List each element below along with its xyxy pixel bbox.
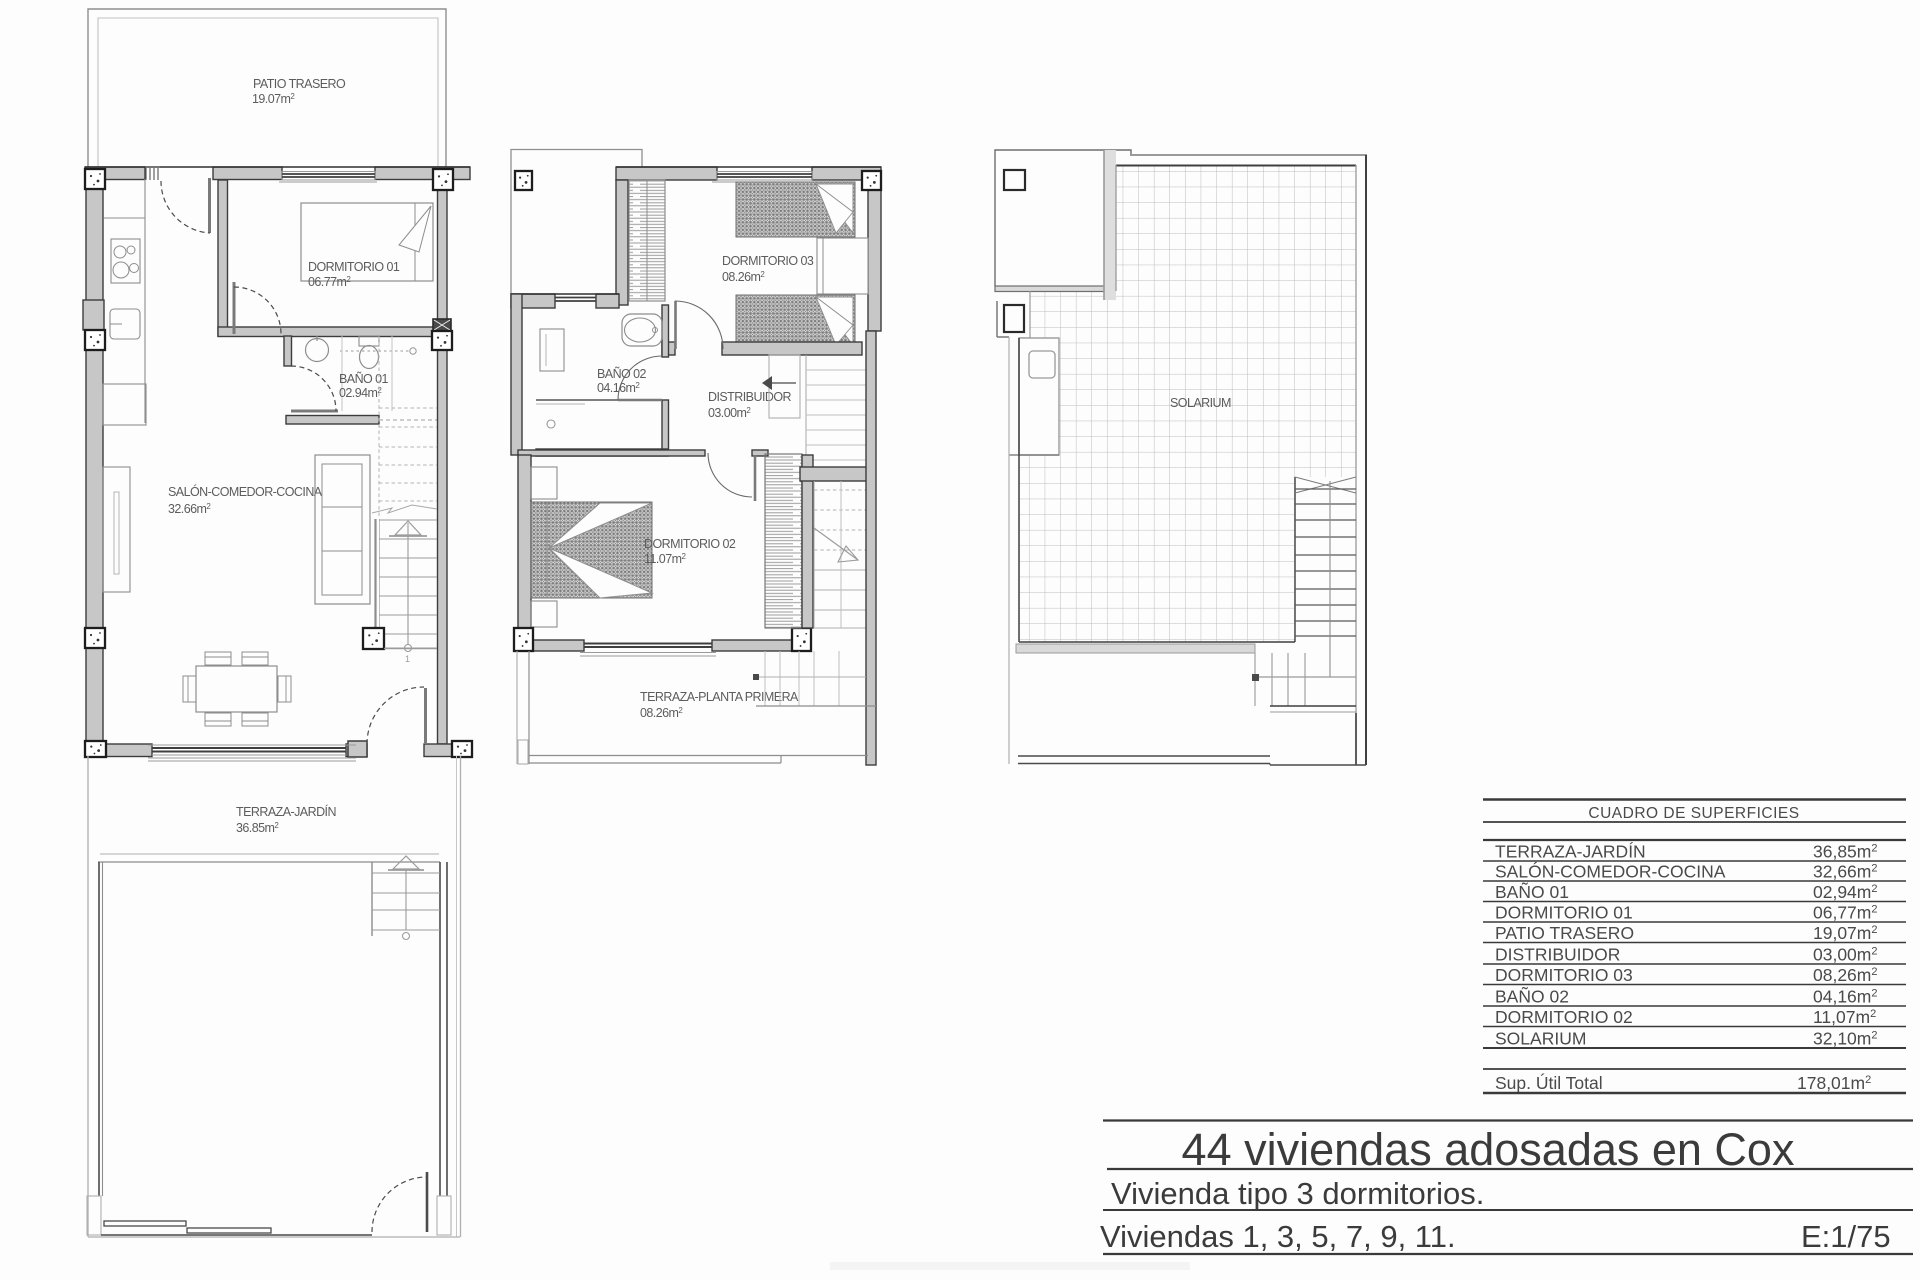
svg-text:11.07m2: 11.07m2 xyxy=(644,552,686,566)
svg-text:32,10m2: 32,10m2 xyxy=(1813,1029,1878,1049)
svg-text:DORMITORIO 01: DORMITORIO 01 xyxy=(1495,903,1633,923)
svg-text:DORMITORIO 02: DORMITORIO 02 xyxy=(644,537,736,551)
svg-text:TERRAZA-JARDÍN: TERRAZA-JARDÍN xyxy=(236,804,336,819)
svg-text:TERRAZA-JARDÍN: TERRAZA-JARDÍN xyxy=(1495,842,1646,862)
svg-text:04,16m2: 04,16m2 xyxy=(1813,987,1878,1007)
svg-text:06,77m2: 06,77m2 xyxy=(1813,903,1878,923)
svg-text:36,85m2: 36,85m2 xyxy=(1813,842,1878,862)
svg-text:PATIO TRASERO: PATIO TRASERO xyxy=(1495,923,1634,943)
svg-text:DORMITORIO 03: DORMITORIO 03 xyxy=(1495,965,1633,985)
svg-text:BAÑO 02: BAÑO 02 xyxy=(1495,986,1569,1007)
svg-text:Viviendas 1, 3, 5, 7, 9, 11.: Viviendas 1, 3, 5, 7, 9, 11. xyxy=(1100,1219,1456,1254)
svg-text:BAÑO 02: BAÑO 02 xyxy=(597,367,647,381)
svg-text:DISTRIBUIDOR: DISTRIBUIDOR xyxy=(708,390,792,404)
svg-text:19.07m2: 19.07m2 xyxy=(252,92,295,106)
svg-text:08.26m2: 08.26m2 xyxy=(722,270,765,284)
svg-text:SOLARIUM: SOLARIUM xyxy=(1170,396,1231,410)
svg-text:02.94m2: 02.94m2 xyxy=(339,386,382,400)
svg-text:178,01m2: 178,01m2 xyxy=(1797,1073,1871,1093)
svg-text:02,94m2: 02,94m2 xyxy=(1813,882,1878,902)
svg-text:08,26m2: 08,26m2 xyxy=(1813,965,1878,985)
svg-text:19,07m2: 19,07m2 xyxy=(1813,923,1878,943)
svg-text:DORMITORIO 03: DORMITORIO 03 xyxy=(722,254,814,268)
svg-text:44 viviendas adosadas en Cox: 44 viviendas adosadas en Cox xyxy=(1182,1124,1795,1175)
svg-text:SALÓN-COMEDOR-COCINA: SALÓN-COMEDOR-COCINA xyxy=(1495,861,1726,882)
svg-text:36.85m2: 36.85m2 xyxy=(236,821,279,835)
svg-text:PATIO TRASERO: PATIO TRASERO xyxy=(253,77,346,91)
svg-text:SALÓN-COMEDOR-COCINA: SALÓN-COMEDOR-COCINA xyxy=(168,484,323,499)
svg-text:1: 1 xyxy=(405,654,410,664)
svg-text:06.77m2: 06.77m2 xyxy=(308,275,351,289)
svg-text:03.00m2: 03.00m2 xyxy=(708,406,751,420)
svg-text:DISTRIBUIDOR: DISTRIBUIDOR xyxy=(1495,945,1620,965)
svg-text:BAÑO 01: BAÑO 01 xyxy=(1495,881,1569,902)
svg-text:E:1/75: E:1/75 xyxy=(1801,1219,1891,1254)
svg-text:Vivienda tipo 3 dormitorios.: Vivienda tipo 3 dormitorios. xyxy=(1111,1176,1484,1211)
svg-text:DORMITORIO 02: DORMITORIO 02 xyxy=(1495,1007,1633,1027)
svg-text:03,00m2: 03,00m2 xyxy=(1813,945,1878,965)
svg-text:32.66m2: 32.66m2 xyxy=(168,502,211,516)
svg-text:Sup. Útil Total: Sup. Útil Total xyxy=(1495,1072,1603,1093)
svg-text:08.26m2: 08.26m2 xyxy=(640,706,683,720)
svg-text:BAÑO 01: BAÑO 01 xyxy=(339,372,389,386)
svg-text:CUADRO DE SUPERFICIES: CUADRO DE SUPERFICIES xyxy=(1588,805,1799,822)
svg-text:11,07m2: 11,07m2 xyxy=(1813,1007,1876,1027)
svg-text:32,66m2: 32,66m2 xyxy=(1813,862,1878,882)
svg-text:DORMITORIO 01: DORMITORIO 01 xyxy=(308,260,400,274)
svg-text:04.16m2: 04.16m2 xyxy=(597,381,640,395)
svg-text:TERRAZA-PLANTA PRIMERA: TERRAZA-PLANTA PRIMERA xyxy=(640,690,799,704)
svg-text:SOLARIUM: SOLARIUM xyxy=(1495,1029,1586,1049)
